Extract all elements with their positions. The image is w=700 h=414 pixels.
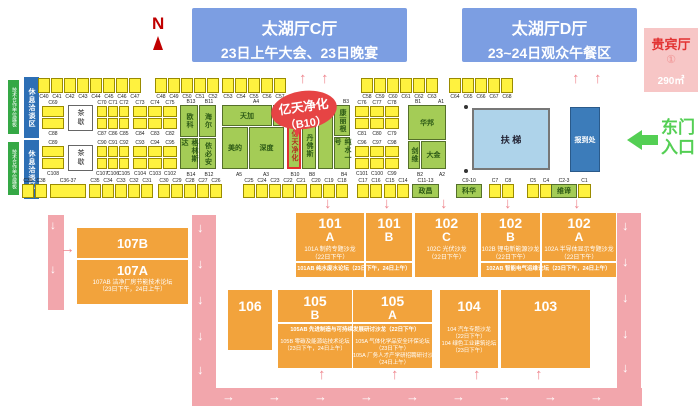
forum-band-105AB: 105AB 先进制造与可持续发展研讨沙龙（22日下午） (278, 325, 432, 333)
booth-C23 (269, 184, 281, 198)
booth-name: 剑维 (409, 147, 419, 163)
down-arrow-icon: ↓ (50, 218, 56, 232)
tea-break-box: 茶歇 (68, 145, 93, 171)
booth-name: 欧科 (184, 113, 194, 129)
up-arrow-icon: ↑ (572, 70, 580, 87)
booth-C102 (163, 158, 177, 169)
label-B1: B1 (410, 99, 426, 105)
booth-C96 (355, 146, 369, 157)
label-C88: C88 (42, 131, 64, 137)
forum-title-letter: A (296, 231, 364, 244)
forum-subtitle: 107AB 洁净厂房节能技术论坛 （23日下午，24日上午） (77, 280, 188, 294)
booth-C26 (210, 184, 222, 198)
booth-C87 (97, 118, 107, 129)
booth-name: 美的 (228, 143, 242, 153)
down-arrow-icon: ↓ (197, 328, 204, 343)
label-C89: C89 (42, 140, 64, 146)
booth-C86 (108, 118, 118, 129)
booth-美的: 美的 (222, 127, 248, 169)
booth-C18 (336, 184, 348, 198)
booth-C44 (90, 78, 102, 93)
booth-C35 (89, 184, 101, 198)
forum-subtitle-line: （24日上午） (353, 358, 432, 366)
forum-title-letter: B (366, 231, 412, 244)
east-entrance-label: 东门 入口 (661, 118, 695, 158)
booth-欧科: 欧科 (180, 105, 198, 137)
forum-subtitle-line: （22日下午） (481, 252, 540, 261)
booth-依必安: 依必安 (199, 138, 216, 169)
booth-C73 (133, 106, 147, 117)
aisle-strip-right (617, 213, 641, 406)
down-arrow-icon: ↓ (383, 195, 391, 212)
booth-科华: 科华 (456, 184, 482, 198)
up-arrow-icon: ↑ (391, 366, 399, 383)
forum-band-divider (296, 261, 412, 263)
booth-C31 (141, 184, 153, 198)
vip-number: ① (644, 53, 698, 66)
forum-subtitle-line: 107AB 洁净厂房节能技术论坛 (77, 280, 188, 287)
booth-C33 (115, 184, 127, 198)
down-arrow-icon: ↓ (197, 220, 204, 235)
hall-c-header: 太湖厅C厅 23日上午大会、23日晚宴 (192, 8, 407, 62)
booth-C50 (181, 78, 193, 93)
forum-title: 107A (77, 260, 188, 278)
forum-title: 104 (440, 290, 498, 314)
booth-C52 (207, 78, 219, 93)
booth-C82 (163, 118, 177, 129)
booth-name: 格林斯达 (179, 139, 199, 168)
down-arrow-icon: ↓ (197, 362, 204, 377)
booth-C21 (295, 184, 307, 198)
forum-subtitle-line: （22日下午） (542, 252, 616, 261)
booth-C53 (222, 78, 234, 93)
booth-华邦: 华邦 (408, 105, 446, 140)
east-entrance-line2: 入口 (661, 138, 695, 158)
booth-C32 (128, 184, 140, 198)
booth-天加: 天加 (222, 105, 272, 126)
label-C18: C18 (332, 178, 352, 184)
booth-C48 (155, 78, 167, 93)
booth-C17 (357, 184, 369, 198)
forum-title: 101 (296, 213, 364, 231)
hall-d-title: 太湖厅D厅 (462, 15, 637, 39)
booth-C22 (282, 184, 294, 198)
forum-title: 106 (228, 290, 272, 314)
booth-C16 (370, 184, 382, 198)
booth-C66 (475, 78, 487, 93)
right-arrow-icon: → (360, 389, 373, 404)
right-arrow-icon: → (498, 389, 511, 404)
booth-C90 (97, 146, 107, 157)
booth-name: 华邦 (420, 118, 434, 128)
forum-title: 102 (481, 213, 540, 231)
booth-C68 (501, 78, 513, 93)
down-arrow-icon: ↓ (573, 195, 581, 212)
forum-band-101AB: 101AB 纯水废水论坛（23日下午，24日上午） (296, 264, 412, 272)
vip-room: 贵宾厅 ① 290㎡ (644, 28, 698, 92)
forum-room-103: 103 (501, 290, 590, 368)
booth-C38 (35, 184, 47, 198)
booth-C39 (22, 184, 34, 198)
tech-partner-strip: 技术合作单位展板 (8, 142, 19, 195)
booth-name: 海尔 (203, 113, 213, 129)
booth-C43 (77, 78, 89, 93)
booth-格林斯达: 格林斯达 (180, 138, 198, 169)
booth-C104 (133, 158, 147, 169)
forum-title: 105 (278, 290, 352, 309)
booth-C92 (119, 146, 129, 157)
booth-C5 (527, 184, 539, 198)
booth-C36-37 (50, 184, 86, 198)
down-arrow-icon: ↓ (50, 262, 56, 276)
booth-C60 (387, 78, 399, 93)
booth-C84 (133, 118, 147, 129)
booth-C80 (370, 118, 384, 129)
up-arrow-icon: ↑ (299, 70, 307, 87)
booth-C101 (355, 158, 369, 169)
down-arrow-icon: ↓ (197, 256, 204, 271)
label-C36-37: C36-37 (46, 178, 90, 184)
booth-name: 科华 (462, 186, 476, 196)
label-B13: B13 (183, 99, 199, 105)
label-C9-10: C9-10 (452, 178, 486, 184)
vip-title: 贵宾厅 (644, 34, 698, 53)
hall-c-title: 太湖厅C厅 (192, 15, 407, 39)
booth-name: 政昌 (419, 186, 433, 196)
booth-C34 (102, 184, 114, 198)
hall-d-header: 太湖厅D厅 23~24日观众午餐区 (462, 8, 637, 62)
booth-C29 (171, 184, 183, 198)
booth-C7 (489, 184, 501, 198)
booth-C105 (119, 158, 129, 169)
label-C79: C79 (382, 131, 402, 137)
label-C82: C82 (160, 131, 180, 137)
down-arrow-icon: ↓ (622, 290, 629, 305)
aisle-strip-left (192, 215, 216, 391)
forum-title-letter: A (542, 231, 616, 244)
booth-C14 (397, 184, 409, 198)
booth-name: 深度 (260, 143, 274, 153)
down-arrow-icon: ↓ (622, 218, 629, 233)
right-arrow-icon: → (590, 389, 603, 404)
booth-C78 (385, 106, 399, 117)
hall-d-subtitle: 23~24日观众午餐区 (462, 43, 637, 63)
vip-area: 290㎡ (644, 72, 698, 87)
column-dot (464, 169, 468, 173)
booth-C59 (374, 78, 386, 93)
down-arrow-icon: ↓ (440, 195, 448, 212)
booth-C58 (361, 78, 373, 93)
booth-C57 (274, 78, 286, 93)
booth-C83 (148, 118, 162, 129)
forum-title: 102 (415, 213, 478, 231)
booth-C107 (97, 158, 107, 169)
booth-C30 (158, 184, 170, 198)
forum-subtitle-line: （23日下午） (440, 346, 498, 354)
label-C99: C99 (382, 171, 402, 177)
right-arrow-icon: → (222, 389, 235, 404)
forum-subtitle-line: （22日下午） (415, 252, 478, 261)
forum-title-letter: B (278, 309, 352, 322)
down-arrow-icon: ↓ (324, 195, 332, 212)
booth-C103 (148, 158, 162, 169)
booth-剑维: 剑维 (408, 141, 420, 169)
booth-C25 (243, 184, 255, 198)
right-arrow-icon: → (314, 389, 327, 404)
up-arrow-icon: ↑ (473, 366, 481, 383)
forum-subtitle-line: （22日下午） (296, 252, 364, 261)
booth-C51 (194, 78, 206, 93)
forum-band-divider (481, 261, 616, 263)
compass-arrow-icon (153, 36, 163, 50)
booth-C40 (38, 78, 50, 93)
down-arrow-icon: ↓ (622, 326, 629, 341)
label-B3: B3 (338, 99, 354, 105)
booth-C69 (42, 106, 64, 117)
label-B11: B11 (201, 99, 217, 105)
down-arrow-icon: ↓ (622, 254, 629, 269)
forum-title-letter: A (353, 309, 432, 322)
booth-C67 (488, 78, 500, 93)
booth-C94 (148, 146, 162, 157)
right-arrow-icon: → (268, 389, 281, 404)
label-A4: A4 (248, 99, 264, 105)
booth-C42 (64, 78, 76, 93)
booth-C81 (355, 118, 369, 129)
booth-C75 (163, 106, 177, 117)
label-C1: C1 (574, 178, 595, 184)
forum-room-107A: 107A 107AB 洁净厂房节能技术论坛 （23日下午，24日上午） (77, 260, 188, 304)
booth-C98 (385, 146, 399, 157)
booth-C62 (413, 78, 425, 93)
booth-海尔: 海尔 (199, 105, 216, 137)
booth-name: 依必安 (203, 142, 213, 166)
hall-c-subtitle: 23日上午大会、23日晚宴 (192, 43, 407, 63)
forum-band-102AB: 102AB 智能电气运维论坛（23日下午，24日上午） (481, 264, 616, 272)
booth-C88 (42, 118, 64, 129)
booth-C93 (133, 146, 147, 157)
forum-title-letter: C (415, 231, 478, 244)
booth-C71 (108, 106, 118, 117)
label-A1: A1 (433, 99, 449, 105)
floor-plan: N 太湖厅C厅 23日上午大会、23日晚宴 太湖厅D厅 23~24日观众午餐区 … (0, 0, 700, 414)
forum-title: 103 (501, 290, 590, 314)
right-arrow-icon: → (544, 389, 557, 404)
right-arrow-icon: → (406, 389, 419, 404)
label-C68: C68 (497, 94, 517, 100)
down-arrow-icon: ↓ (197, 292, 204, 307)
booth-name: 丹佛斯 (304, 134, 314, 158)
east-entrance-arrow-icon (627, 130, 642, 150)
forum-room-107B: 107B (77, 228, 188, 258)
booth-C24 (256, 184, 268, 198)
booth-C79 (385, 118, 399, 129)
booth-C99 (385, 158, 399, 169)
label-C11-13: C11-13 (408, 178, 443, 184)
booth-name: 大金 (427, 150, 441, 160)
booth-C45 (103, 78, 115, 93)
booth-C97 (370, 146, 384, 157)
booth-name: 天加 (240, 111, 254, 121)
forum-title: 105 (353, 290, 432, 309)
up-arrow-icon: ↑ (321, 70, 329, 87)
booth-C20 (310, 184, 322, 198)
booth-name: 纯水一号 (332, 138, 352, 168)
tech-partner-strip: 技术合作单位展板 (8, 80, 19, 134)
forum-band-divider (278, 322, 432, 324)
rest-area-strip: 休息洽谈区 (24, 77, 39, 138)
label-C26: C26 (206, 178, 226, 184)
booth-C77 (370, 106, 384, 117)
booth-C28 (184, 184, 196, 198)
compass-n-label: N (152, 14, 164, 34)
booth-纯水一号: 纯水一号 (334, 137, 350, 169)
booth-大金: 大金 (421, 141, 446, 169)
booth-C49 (168, 78, 180, 93)
booth-C61 (400, 78, 412, 93)
booth-C27 (197, 184, 209, 198)
escalator: 扶 梯 (472, 108, 550, 170)
booth-C76 (355, 106, 369, 117)
booth-C108 (42, 158, 64, 169)
label-C69: C69 (42, 100, 64, 106)
up-arrow-icon: ↑ (535, 366, 543, 383)
booth-C106 (108, 158, 118, 169)
label-C102: C102 (160, 171, 180, 177)
forum-room-102C: 102C102C 光伏沙龙（22日下午） (415, 213, 478, 277)
forum-subtitle-line: （23日下午，24日上午） (278, 344, 352, 352)
booth-C41 (51, 78, 63, 93)
forum-title: 101 (366, 213, 412, 231)
forum-title: 107B (77, 228, 188, 251)
forum-title-letter: B (481, 231, 540, 244)
up-arrow-icon: ↑ (594, 70, 602, 87)
booth-C46 (116, 78, 128, 93)
booth-name: 维谛 (557, 186, 571, 196)
booth-C72 (119, 106, 129, 117)
booth-C56 (261, 78, 273, 93)
forum-title: 102 (542, 213, 616, 231)
booth-C100 (370, 158, 384, 169)
booth-C65 (462, 78, 474, 93)
forum-room-106: 106 (228, 290, 272, 350)
booth-C47 (129, 78, 141, 93)
forum-room-104: 104104 汽车专题沙龙（22日下午）104 绿色工业建筑论坛（23日下午） (440, 290, 498, 368)
east-entrance-arrow-icon (641, 135, 658, 145)
booth-政昌: 政昌 (412, 184, 439, 198)
booth-C91 (108, 146, 118, 157)
booth-C89 (42, 146, 64, 157)
up-arrow-icon: ↑ (318, 366, 326, 383)
right-arrow-icon: → (60, 240, 75, 257)
booth-C54 (235, 78, 247, 93)
booth-C55 (248, 78, 260, 93)
booth-C63 (426, 78, 438, 93)
booth-C85 (119, 118, 129, 129)
down-arrow-icon: ↓ (504, 195, 512, 212)
tea-break-box: 茶歇 (68, 105, 93, 131)
booth-C74 (148, 106, 162, 117)
label-C8: C8 (498, 178, 518, 184)
label-C108: C108 (42, 171, 64, 177)
forum-subtitle-line: （23日下午，24日上午） (77, 287, 188, 294)
east-entrance-line1: 东门 (661, 118, 695, 138)
booth-C95 (163, 146, 177, 157)
registration-desk: 报到处 (570, 107, 600, 172)
booth-C64 (449, 78, 461, 93)
down-arrow-icon: ↓ (622, 360, 629, 375)
booth-C70 (97, 106, 107, 117)
right-arrow-icon: → (452, 389, 465, 404)
column-dot (464, 105, 468, 109)
